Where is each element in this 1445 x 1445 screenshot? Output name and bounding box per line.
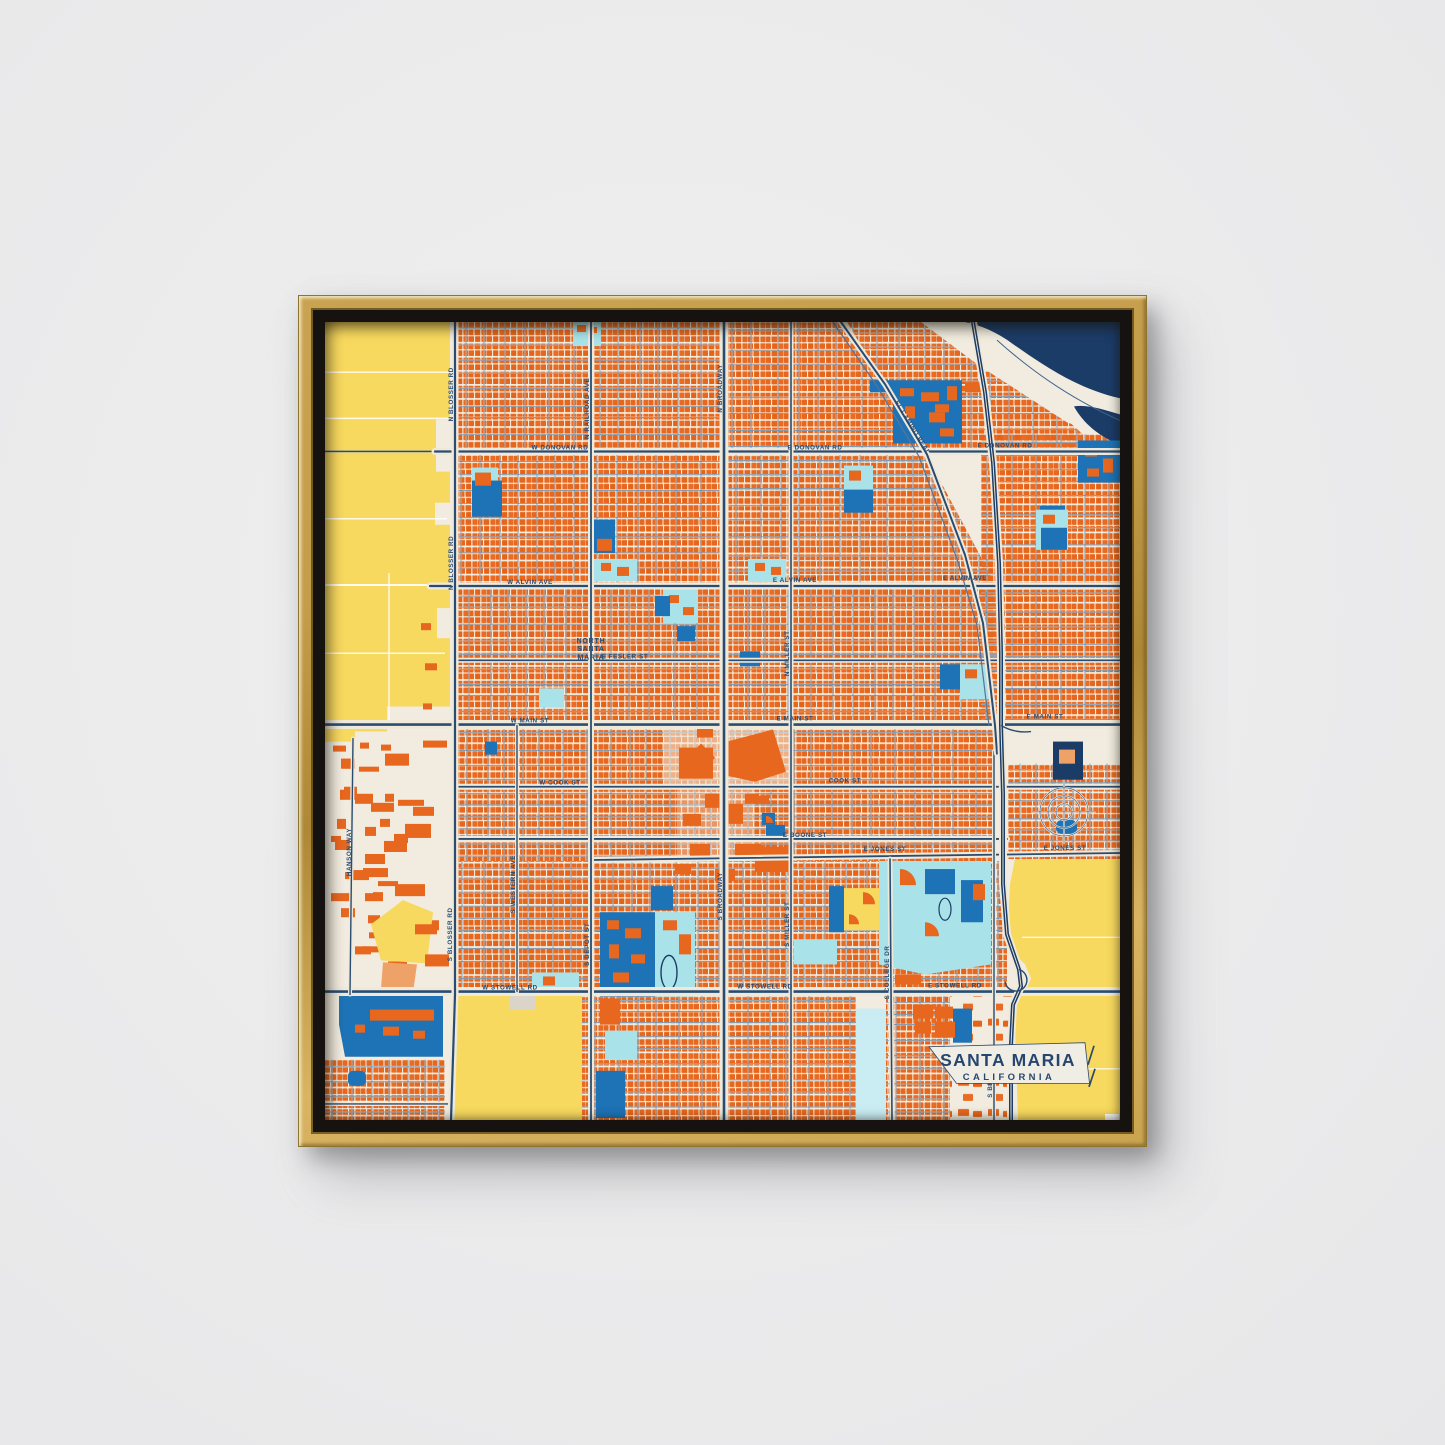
svg-text:NORTH: NORTH <box>577 638 606 645</box>
svg-text:W MAIN ST: W MAIN ST <box>511 717 549 724</box>
svg-text:S COLLEGE DR: S COLLEGE DR <box>884 946 891 1000</box>
svg-text:COOK ST: COOK ST <box>829 778 861 785</box>
svg-text:SANTA MARIA: SANTA MARIA <box>940 1050 1076 1070</box>
svg-text:E DONOVAN RD: E DONOVAN RD <box>978 442 1033 449</box>
svg-text:S BLOSSER RD: S BLOSSER RD <box>447 907 454 961</box>
svg-text:E JONES ST: E JONES ST <box>864 846 906 853</box>
svg-text:W ALVIN AVE: W ALVIN AVE <box>507 579 553 586</box>
svg-text:W COOK ST: W COOK ST <box>539 780 580 787</box>
svg-text:SANTA: SANTA <box>577 646 605 653</box>
svg-text:E MAIN ST: E MAIN ST <box>1027 713 1064 720</box>
svg-text:S MILLER ST: S MILLER ST <box>784 902 791 947</box>
svg-text:W STOWELL RD: W STOWELL RD <box>737 983 792 990</box>
svg-text:MARIA: MARIA <box>578 654 605 661</box>
svg-text:E ALVIN AVE: E ALVIN AVE <box>773 577 817 584</box>
svg-text:N MILLER ST: N MILLER ST <box>784 630 791 676</box>
svg-text:N RAILROAD AVE: N RAILROAD AVE <box>584 378 591 439</box>
svg-text:E DONOVAN RD: E DONOVAN RD <box>788 444 843 451</box>
svg-text:W STOWELL RD: W STOWELL RD <box>482 985 537 992</box>
svg-text:S DEPOT ST: S DEPOT ST <box>584 923 591 966</box>
svg-text:W DONOVAN RD: W DONOVAN RD <box>532 444 589 451</box>
svg-text:E JONES ST: E JONES ST <box>1044 845 1086 852</box>
svg-text:HANSON WAY: HANSON WAY <box>346 828 353 877</box>
svg-text:N BROADWAY: N BROADWAY <box>717 364 724 413</box>
svg-text:CALIFORNIA: CALIFORNIA <box>963 1072 1055 1083</box>
svg-text:E STOWELL RD: E STOWELL RD <box>928 982 982 989</box>
svg-text:E BOONE ST: E BOONE ST <box>783 832 827 839</box>
svg-text:N BLOSSER RD: N BLOSSER RD <box>448 536 455 590</box>
svg-text:E MAIN ST: E MAIN ST <box>777 715 814 722</box>
svg-text:S WESTERN AVE: S WESTERN AVE <box>510 855 517 914</box>
svg-text:E ALVIN AVE: E ALVIN AVE <box>943 575 987 582</box>
svg-text:N BLOSSER RD: N BLOSSER RD <box>448 367 455 421</box>
svg-text:S BROADWAY: S BROADWAY <box>717 872 724 921</box>
svg-text:E FESLER ST: E FESLER ST <box>602 653 649 660</box>
